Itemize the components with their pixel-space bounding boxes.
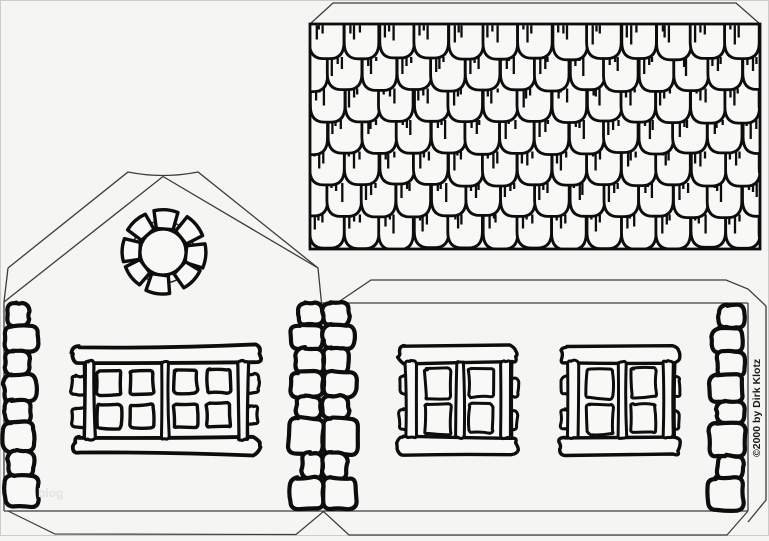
svg-text:©2000 by Dirk Klotz: ©2000 by Dirk Klotz xyxy=(751,359,763,457)
svg-text:blog: blog xyxy=(38,486,63,500)
